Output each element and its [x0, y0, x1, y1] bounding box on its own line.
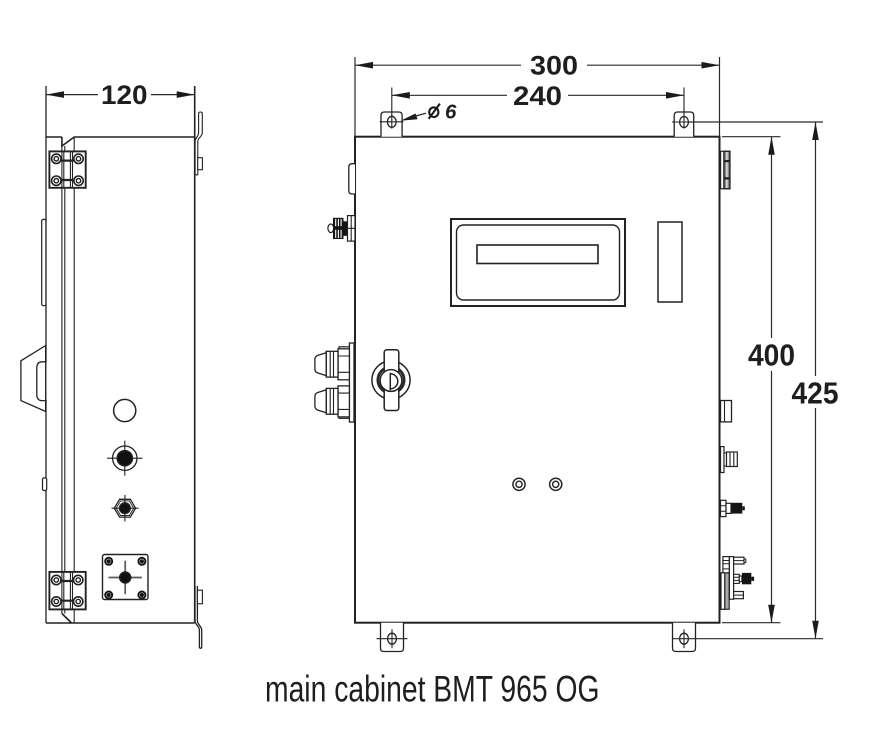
- svg-text:120: 120: [101, 80, 148, 110]
- svg-text:240: 240: [513, 81, 562, 111]
- svg-text:425: 425: [792, 376, 839, 411]
- svg-text:400: 400: [748, 338, 795, 373]
- svg-text:6: 6: [445, 100, 457, 123]
- svg-text:main cabinet BMT 965 OG: main cabinet BMT 965 OG: [265, 669, 600, 710]
- svg-text:300: 300: [530, 51, 578, 81]
